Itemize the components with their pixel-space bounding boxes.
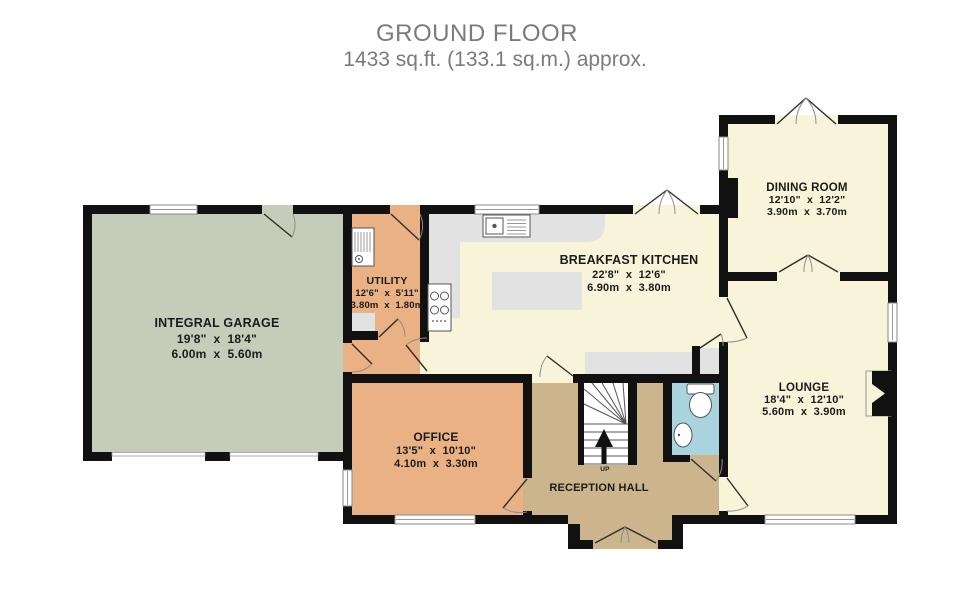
kitchen-island — [492, 272, 582, 310]
room-dims-metric: 3.90m x 3.70m — [767, 206, 847, 218]
garage-door-opening — [230, 452, 318, 461]
room-dims-metric: 3.80m x 1.80m — [351, 300, 424, 311]
wall-segment — [578, 383, 584, 465]
wall-segment — [539, 205, 633, 214]
kitchen-south-unit — [585, 352, 695, 374]
wall-segment — [658, 540, 681, 549]
hob-icon — [428, 284, 451, 331]
wall-segment — [888, 115, 897, 303]
wall-segment — [628, 383, 637, 465]
wall-segment — [523, 374, 532, 478]
floorplan-drawing: GROUND FLOOR 1433 sq.ft. (133.1 sq.m.) a… — [0, 0, 980, 609]
room-dims-metric: 4.10m x 3.30m — [394, 458, 478, 470]
wall-segment — [573, 374, 728, 383]
wall-segment — [343, 372, 352, 470]
window — [395, 515, 475, 524]
washing-machine-icon — [352, 228, 374, 266]
wall-segment — [205, 452, 230, 461]
garage-door-opening — [112, 452, 205, 461]
page-subtitle: 1433 sq.ft. (133.1 sq.m.) approx. — [343, 48, 647, 71]
utility-cupboard — [352, 313, 375, 331]
hall-east-floor — [663, 455, 728, 524]
store-cupboard — [700, 348, 719, 374]
room-name: RECEPTION HALL — [549, 482, 648, 494]
wall-segment — [420, 205, 475, 214]
room-name: UTILITY — [366, 275, 407, 287]
window — [475, 205, 539, 214]
window — [765, 515, 855, 524]
wall-segment — [663, 374, 672, 462]
wall-segment — [719, 515, 765, 524]
room-dims-imperial: 12'6" x 5'11" — [355, 288, 419, 299]
dining-label: DINING ROOM 12'10" x 12'2" 3.90m x 3.70m — [766, 182, 847, 218]
room-name: OFFICE — [413, 430, 458, 444]
kitchen-sink-icon — [483, 215, 530, 237]
wall-segment — [663, 455, 690, 462]
wall-segment — [83, 452, 112, 461]
room-name: BREAKFAST KITCHEN — [560, 253, 699, 267]
stairs-icon — [584, 383, 628, 465]
room-name: LOUNGE — [779, 382, 830, 394]
room-name: DINING ROOM — [766, 182, 847, 194]
room-dims-metric: 6.00m x 5.60m — [171, 347, 262, 361]
basin-icon — [674, 423, 692, 447]
title: GROUND FLOOR 1433 sq.ft. (133.1 sq.m.) a… — [343, 20, 647, 71]
wall-segment — [343, 374, 528, 383]
wall-segment — [475, 515, 568, 524]
wall-segment — [888, 342, 897, 524]
room-dims-imperial: 12'10" x 12'2" — [769, 194, 846, 206]
room-dims-metric: 6.90m x 3.80m — [587, 282, 671, 294]
wall-segment — [197, 205, 262, 214]
page-title: GROUND FLOOR — [376, 20, 578, 47]
room-dims-imperial: 18'4" x 12'10" — [764, 394, 844, 406]
room-dims-imperial: 22'8" x 12'6" — [592, 269, 666, 281]
room-name: INTEGRAL GARAGE — [155, 316, 280, 330]
wall-segment — [855, 515, 897, 524]
wall-segment — [568, 540, 593, 549]
wall-segment — [719, 342, 728, 477]
wall-segment — [83, 205, 92, 461]
wall-segment — [352, 205, 390, 214]
wall-segment — [719, 115, 775, 124]
floorplan-page: GROUND FLOOR 1433 sq.ft. (133.1 sq.m.) a… — [0, 0, 980, 609]
wall-segment — [719, 272, 777, 281]
room-dims-imperial: 13'5" x 10'10" — [396, 445, 476, 457]
wall-segment — [345, 331, 378, 340]
wall-segment — [343, 515, 395, 524]
reception-label: RECEPTION HALL — [549, 482, 648, 494]
wall-segment — [692, 346, 700, 376]
window — [150, 205, 197, 214]
room-dims-metric: 5.60m x 3.90m — [762, 406, 846, 418]
wall-segment — [83, 205, 150, 214]
room-dims-imperial: 19'8" x 18'4" — [177, 332, 257, 346]
window — [343, 470, 352, 506]
wall-segment — [343, 205, 352, 343]
window — [888, 303, 897, 342]
stairs-up-label: UP — [600, 466, 610, 473]
window — [719, 137, 728, 170]
